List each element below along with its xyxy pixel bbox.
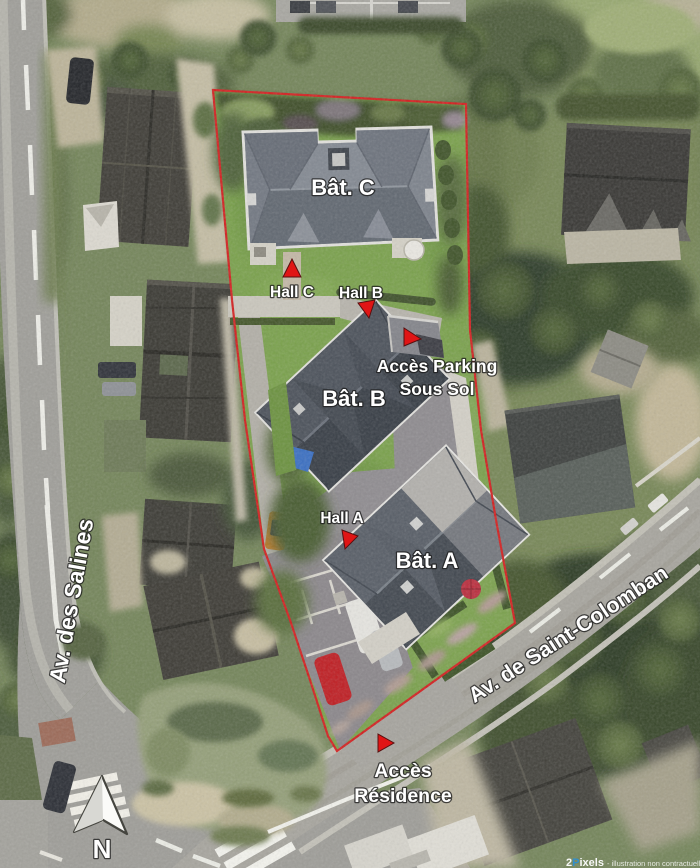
svg-text:Hall A: Hall A — [320, 510, 363, 527]
svg-text:2Pixels - illustration non con: 2Pixels - illustration non contractuelle — [566, 857, 700, 868]
svg-text:Bât. B: Bât. B — [322, 386, 386, 411]
svg-text:Bât. C: Bât. C — [311, 175, 375, 200]
svg-text:N: N — [93, 834, 112, 864]
svg-text:Accès: Accès — [374, 760, 432, 782]
svg-text:Hall B: Hall B — [339, 285, 383, 302]
svg-text:Hall C: Hall C — [270, 284, 314, 301]
svg-text:Résidence: Résidence — [354, 785, 452, 807]
svg-text:Accès Parking: Accès Parking — [377, 356, 498, 376]
svg-text:Bât. A: Bât. A — [396, 548, 459, 573]
svg-text:Sous Sol: Sous Sol — [400, 379, 475, 399]
